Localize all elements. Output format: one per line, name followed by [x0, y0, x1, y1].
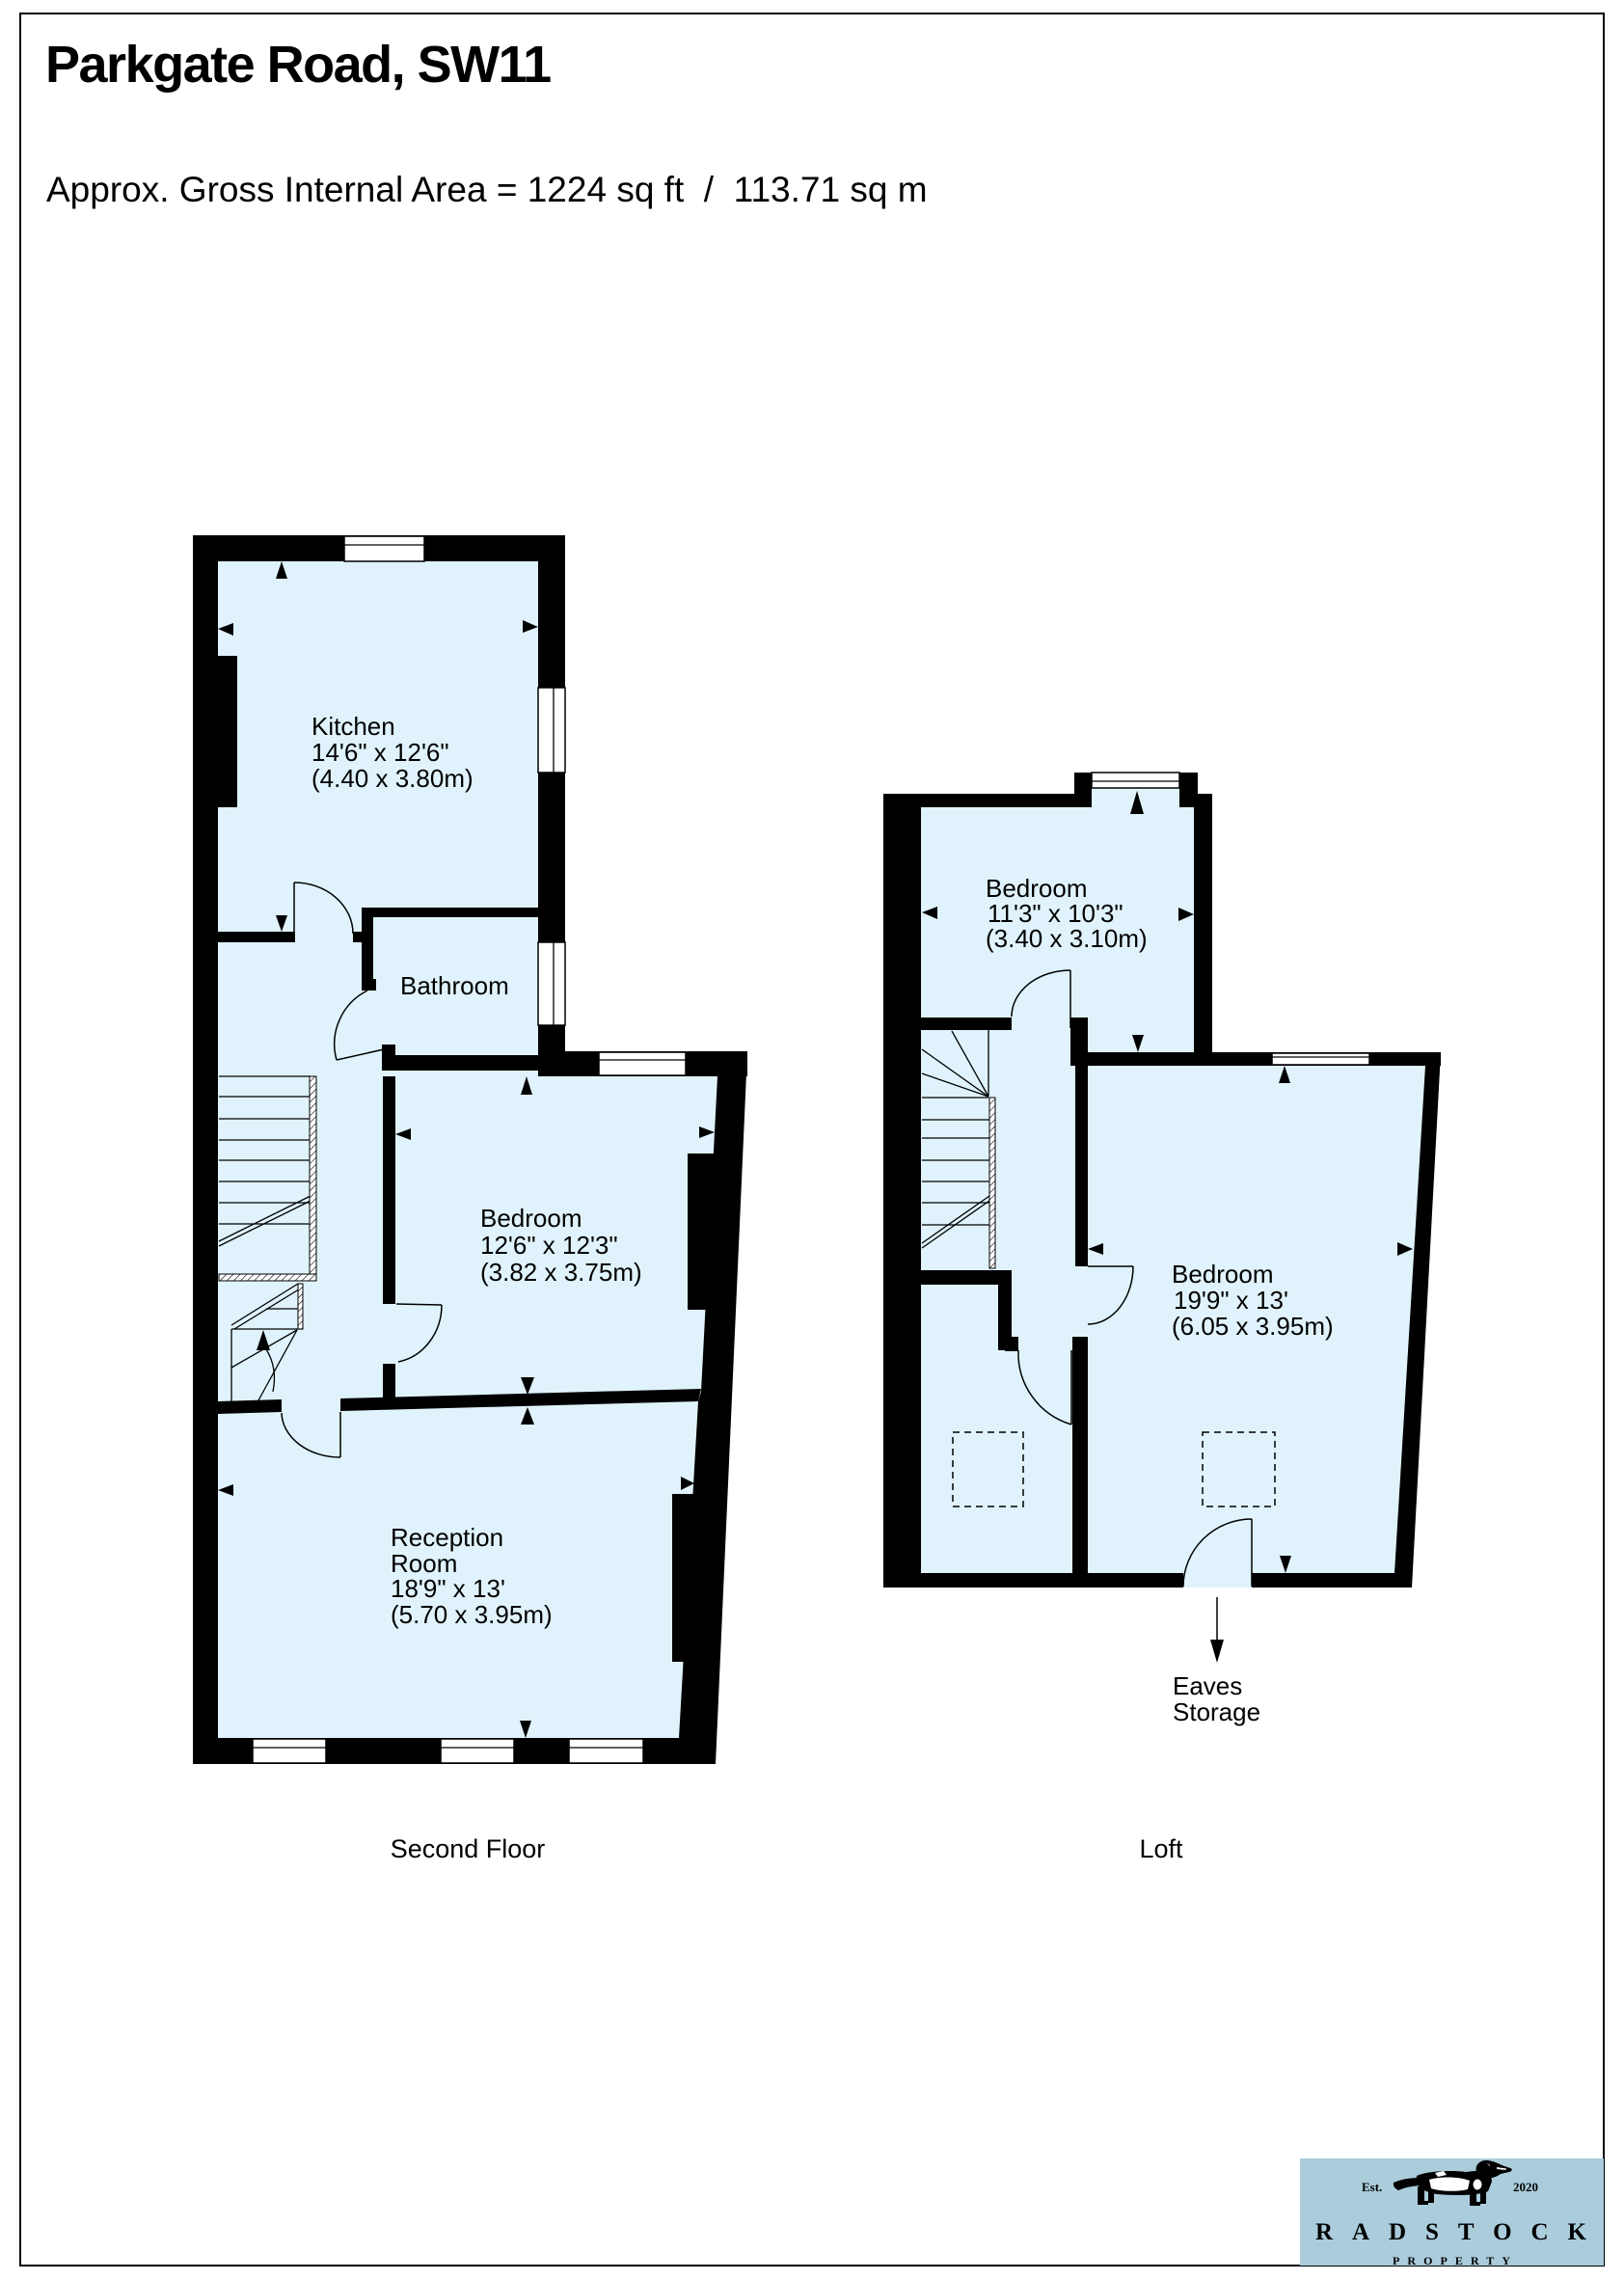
svg-text:18'9" x 13': 18'9" x 13' [391, 1574, 505, 1603]
svg-text:Approx. Gross Internal Area =: Approx. Gross Internal Area = 1224 sq ft… [46, 170, 928, 209]
svg-text:Second Floor: Second Floor [391, 1834, 546, 1863]
svg-text:Est.: Est. [1362, 2180, 1382, 2194]
svg-text:Loft: Loft [1139, 1834, 1183, 1863]
svg-text:Bedroom: Bedroom [1172, 1260, 1274, 1289]
svg-text:Storage: Storage [1173, 1697, 1260, 1726]
svg-text:Reception: Reception [391, 1523, 503, 1552]
svg-text:(5.70 x 3.95m): (5.70 x 3.95m) [391, 1600, 553, 1629]
svg-text:12'6" x 12'3": 12'6" x 12'3" [480, 1231, 618, 1260]
svg-text:(3.40 x 3.10m): (3.40 x 3.10m) [986, 924, 1148, 953]
svg-text:Bathroom: Bathroom [400, 971, 509, 1000]
svg-text:(3.82 x 3.75m): (3.82 x 3.75m) [480, 1258, 642, 1287]
svg-text:Bedroom: Bedroom [480, 1204, 582, 1233]
svg-text:19'9" x 13': 19'9" x 13' [1174, 1286, 1288, 1315]
svg-text:(6.05 x 3.95m): (6.05 x 3.95m) [1172, 1312, 1334, 1341]
svg-text:Eaves: Eaves [1173, 1671, 1242, 1700]
svg-text:2020: 2020 [1513, 2180, 1538, 2194]
svg-text:(4.40 x 3.80m): (4.40 x 3.80m) [311, 764, 474, 793]
svg-text:14'6" x 12'6": 14'6" x 12'6" [311, 738, 449, 767]
svg-text:Kitchen: Kitchen [311, 712, 395, 741]
svg-text:Parkgate Road, SW11: Parkgate Road, SW11 [45, 36, 551, 94]
